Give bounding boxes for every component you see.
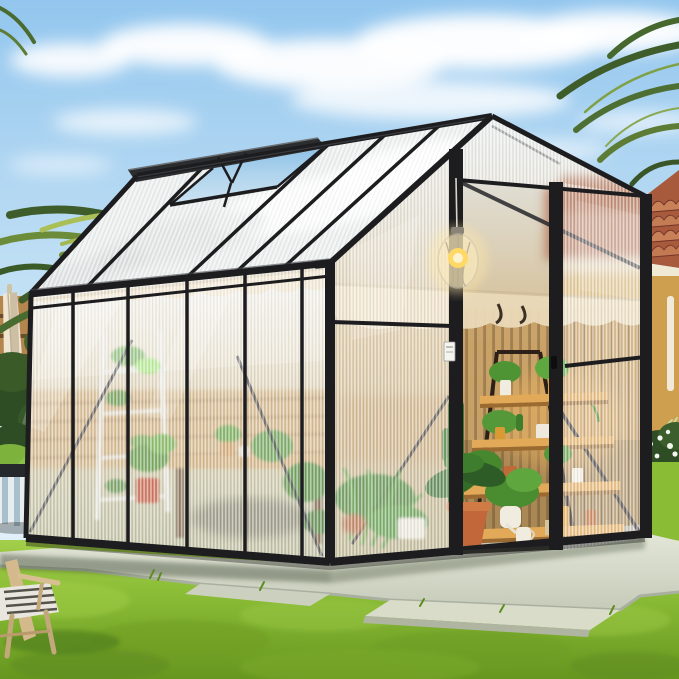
white-label-tag <box>444 342 455 361</box>
front-corner-post <box>325 260 335 563</box>
lamp-cord <box>456 178 457 232</box>
solar-stake-light <box>545 520 549 535</box>
backyard-greenhouse-scene <box>0 0 679 679</box>
door-handle <box>551 356 557 369</box>
right-corner-post <box>640 194 652 538</box>
downspout-pipe <box>667 296 674 391</box>
product-photo <box>0 0 679 679</box>
